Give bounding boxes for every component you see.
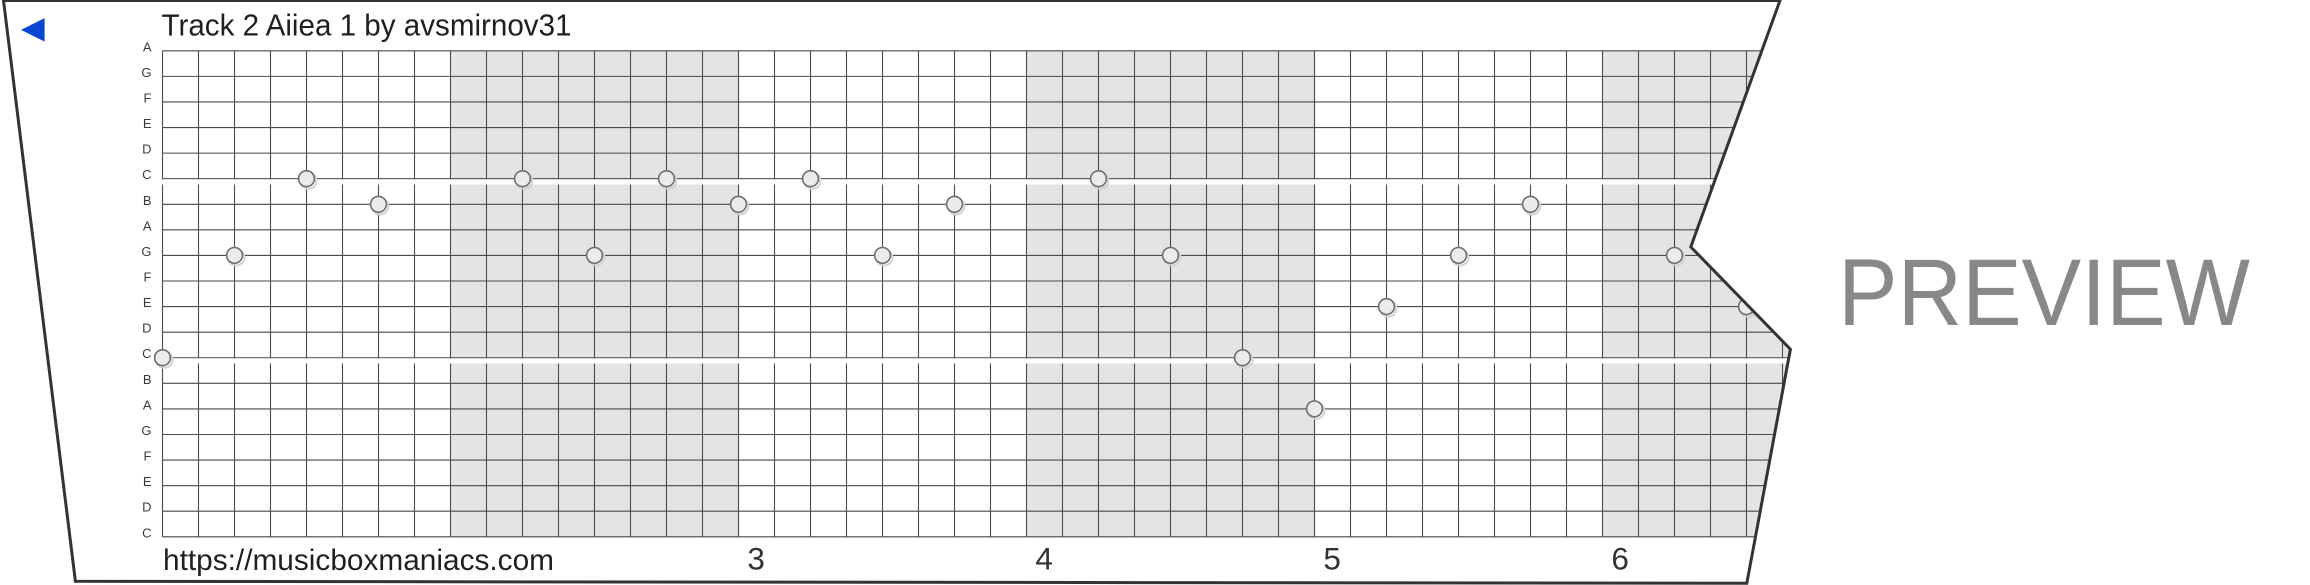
svg-text:Track 2 Aiiea 1 by avsmirnov31: Track 2 Aiiea 1 by avsmirnov31: [162, 9, 572, 43]
svg-text:PREVIEW: PREVIEW: [1838, 240, 2250, 346]
svg-text:4: 4: [1035, 541, 1053, 577]
svg-text:C: C: [142, 525, 151, 540]
svg-text:5: 5: [1323, 541, 1341, 577]
svg-text:C: C: [142, 346, 151, 361]
svg-text:6: 6: [1611, 541, 1629, 577]
svg-text:B: B: [143, 193, 152, 208]
svg-text:F: F: [144, 270, 152, 285]
svg-text:A: A: [143, 218, 152, 233]
svg-text:D: D: [142, 142, 151, 157]
svg-text:G: G: [141, 65, 151, 80]
svg-text:E: E: [143, 295, 152, 310]
svg-text:C: C: [142, 167, 151, 182]
svg-text:F: F: [144, 91, 152, 106]
svg-text:D: D: [142, 321, 151, 336]
svg-text:A: A: [143, 397, 152, 412]
svg-text:D: D: [142, 500, 151, 515]
svg-text:E: E: [143, 474, 152, 489]
svg-text:https://musicboxmaniacs.com: https://musicboxmaniacs.com: [163, 544, 554, 577]
svg-text:F: F: [144, 449, 152, 464]
svg-text:G: G: [141, 423, 151, 438]
svg-text:E: E: [143, 116, 152, 131]
svg-text:B: B: [143, 372, 152, 387]
svg-text:G: G: [141, 244, 151, 259]
svg-text:A: A: [143, 39, 152, 54]
svg-text:3: 3: [747, 541, 765, 577]
